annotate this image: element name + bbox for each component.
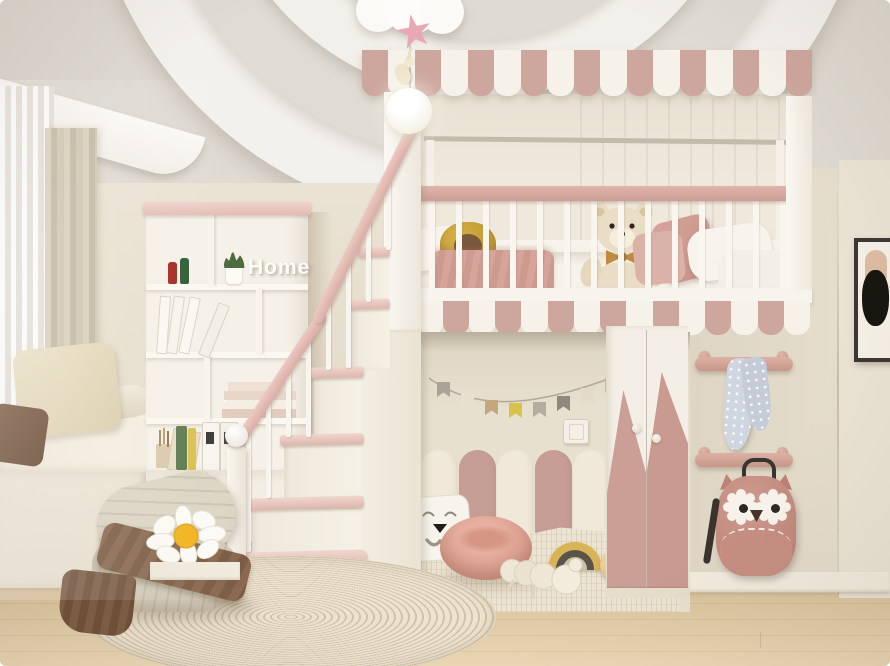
plant-pot: [226, 266, 242, 284]
bed-valance-scallops: [390, 301, 810, 335]
brown-pillow: [0, 402, 50, 467]
wardrobe-knob: [652, 434, 661, 443]
bed-rail-spindles: [402, 198, 786, 292]
art-shape-blob: [862, 270, 889, 326]
stair-spindle: [306, 339, 311, 437]
stair-spindle: [366, 221, 371, 302]
wardrobe: [606, 326, 688, 598]
wardrobe-plinth: [606, 588, 688, 598]
plant-leaves: [222, 250, 246, 268]
stair-tread: [310, 366, 364, 378]
brown-throw-tail: [57, 568, 137, 637]
green-book: [176, 426, 187, 470]
plush-leg: [532, 586, 535, 599]
wall-switch-plate: [569, 424, 584, 440]
stair-spindle: [286, 370, 291, 437]
stair-spindle: [266, 400, 271, 498]
owl-eye: [728, 494, 754, 520]
wall-switch: [563, 419, 589, 444]
stair-riser: [314, 377, 362, 437]
stacked-books: [228, 382, 294, 391]
wardrobe-mountain-right: [647, 372, 688, 596]
binder-label: [206, 432, 214, 444]
bookshelf-top-trim: [143, 202, 311, 215]
white-book-leaning: [198, 302, 230, 358]
newel-ball-finial: [225, 424, 248, 447]
bed-awning-scallops: [362, 50, 812, 96]
stair-riser: [352, 308, 390, 370]
shelf-divider: [204, 356, 210, 420]
owl-pupil: [771, 504, 780, 513]
stair-riser: [252, 509, 362, 555]
bed-rail-top: [396, 186, 792, 201]
stair-spindle: [346, 261, 351, 368]
framed-art: [854, 238, 890, 362]
ball-lamp: [386, 88, 432, 134]
pencils: [159, 430, 161, 446]
shelf-board: [146, 284, 308, 290]
daisy-pillow: [136, 506, 236, 566]
owl-backpack: [714, 458, 798, 578]
red-bottle: [168, 262, 177, 284]
wardrobe-mountain-left: [607, 390, 646, 596]
wardrobe-knob: [632, 424, 641, 433]
binder: [202, 422, 220, 472]
owl-pupil: [739, 504, 748, 513]
yellow-book: [188, 428, 196, 470]
far-right-wall: [839, 160, 890, 598]
shelf-divider: [256, 290, 262, 354]
stair-tread: [280, 433, 364, 446]
green-bottle: [180, 258, 189, 284]
floor-plank-seam: [760, 632, 761, 648]
home-sign: Home: [248, 256, 310, 280]
owl-eye: [760, 494, 786, 520]
stair-spindle: [246, 431, 251, 552]
backpack-pocket: [720, 528, 792, 576]
baseboard-left: [150, 562, 240, 580]
wardrobe-door-seam: [646, 330, 647, 594]
stair-riser: [284, 444, 362, 500]
bed-post-right: [786, 96, 812, 290]
shelf-divider: [208, 204, 214, 286]
room-scene: Home: [0, 0, 890, 666]
